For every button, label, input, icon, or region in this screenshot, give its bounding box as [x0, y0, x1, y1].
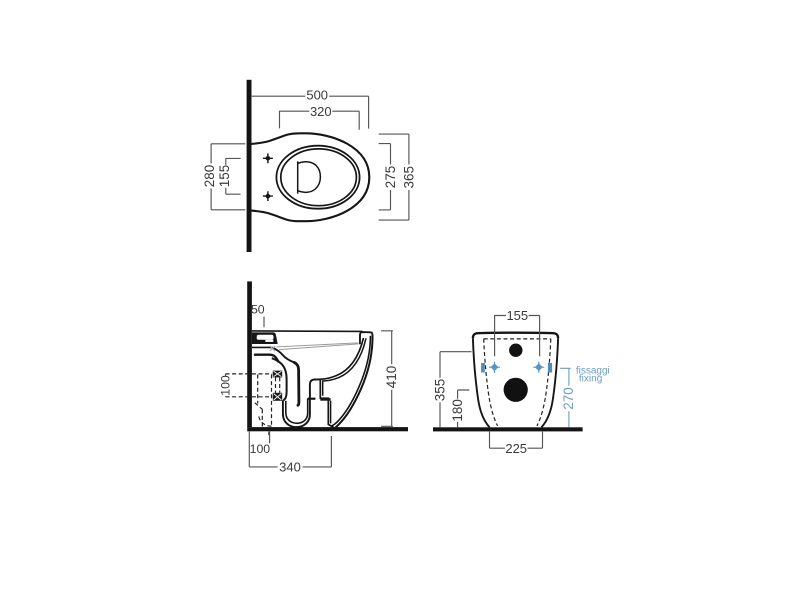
svg-text:355: 355	[433, 379, 448, 402]
svg-text:340: 340	[279, 460, 301, 475]
svg-text:180: 180	[450, 399, 465, 422]
svg-text:155: 155	[217, 165, 232, 188]
svg-text:100: 100	[250, 442, 271, 456]
svg-text:270: 270	[561, 387, 576, 410]
svg-text:500: 500	[306, 87, 328, 102]
svg-text:50: 50	[251, 303, 265, 317]
svg-text:365: 365	[401, 166, 416, 189]
svg-text:225: 225	[505, 441, 527, 456]
svg-text:100: 100	[219, 375, 233, 396]
svg-text:320: 320	[310, 104, 332, 119]
svg-text:410: 410	[384, 366, 399, 389]
svg-text:275: 275	[383, 166, 398, 189]
svg-text:fixing: fixing	[579, 373, 602, 384]
svg-text:155: 155	[506, 308, 528, 323]
svg-text:280: 280	[202, 165, 217, 188]
